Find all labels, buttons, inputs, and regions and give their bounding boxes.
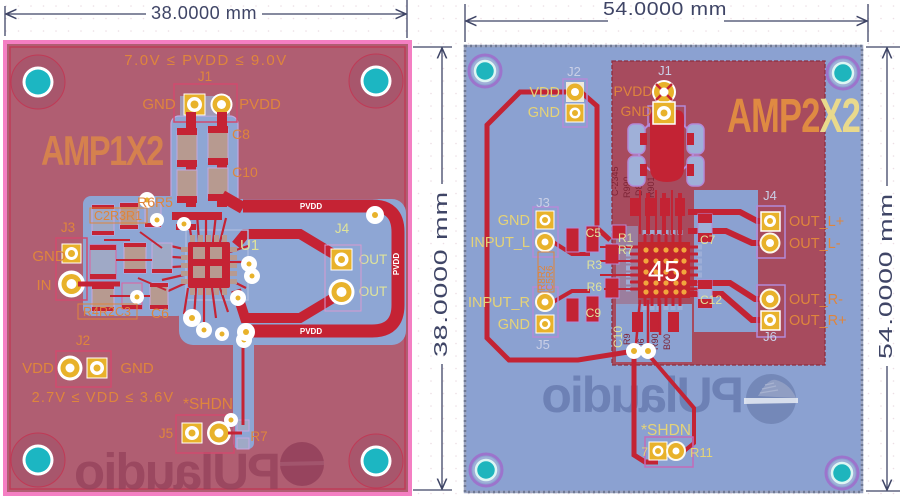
svg-text:GND: GND [528, 105, 560, 121]
svg-text:C7: C7 [700, 233, 716, 247]
svg-text:C-2345: C-2345 [610, 166, 620, 196]
svg-text:7.0V ≤ PVDD ≤ 9.0V: 7.0V ≤ PVDD ≤ 9.0V [124, 52, 288, 69]
svg-text:OUT: OUT [359, 284, 388, 299]
svg-text:J1: J1 [658, 63, 672, 78]
svg-text:OUT_L+: OUT_L+ [789, 214, 844, 230]
svg-text:INPUT_L: INPUT_L [470, 235, 530, 251]
svg-text:OUT_R-: OUT_R- [789, 292, 843, 308]
svg-text:C8: C8 [232, 126, 250, 142]
svg-text:OUT_R+: OUT_R+ [789, 313, 847, 329]
svg-text:U1: U1 [240, 237, 259, 254]
svg-text:GND: GND [120, 360, 154, 377]
svg-text:7: 7 [641, 445, 648, 459]
svg-text:R7: R7 [618, 243, 634, 257]
svg-text:PVDD: PVDD [300, 202, 322, 211]
svg-text:PVDD: PVDD [239, 96, 281, 113]
svg-text:GND: GND [142, 96, 176, 113]
svg-text:J4: J4 [763, 188, 777, 203]
svg-text:J6: J6 [763, 329, 777, 344]
svg-text:R6: R6 [587, 280, 603, 294]
svg-text:PUlaudio: PUlaudio [543, 367, 744, 423]
svg-text:C6: C6 [151, 305, 169, 321]
svg-text:J3: J3 [61, 220, 75, 235]
svg-text:J5: J5 [536, 337, 550, 352]
svg-text:VDD: VDD [529, 85, 560, 101]
svg-text:J1: J1 [198, 69, 212, 84]
svg-text:C5: C5 [586, 226, 602, 240]
svg-text:J2: J2 [76, 333, 90, 348]
svg-text:IN: IN [37, 277, 52, 294]
svg-text:GND: GND [32, 248, 66, 265]
svg-text:PUlaudio: PUlaudio [75, 443, 281, 500]
svg-text:R7: R7 [250, 429, 267, 444]
svg-text:OUT_L-: OUT_L- [789, 236, 841, 252]
svg-text:38.0000 mm: 38.0000 mm [431, 191, 451, 357]
svg-text:R3: R3 [587, 258, 603, 272]
svg-text:VDD: VDD [22, 360, 54, 377]
svg-text:R4R2C3: R4R2C3 [83, 305, 131, 319]
svg-text:C10: C10 [611, 326, 625, 348]
svg-text:R11: R11 [690, 445, 713, 460]
svg-text:J2: J2 [567, 64, 581, 79]
svg-text:INPUT_R: INPUT_R [468, 295, 530, 311]
svg-text:AMP2X2: AMP2X2 [727, 88, 860, 142]
svg-text:PVDD: PVDD [300, 327, 322, 336]
svg-text:J4: J4 [335, 221, 350, 236]
svg-text:*SHDN: *SHDN [641, 422, 691, 439]
svg-text:B00: B00 [662, 334, 672, 350]
svg-text:C12: C12 [700, 293, 722, 307]
svg-text:GND: GND [498, 317, 530, 333]
svg-text:2.7V ≤ VDD ≤ 3.6V: 2.7V ≤ VDD ≤ 3.6V [32, 390, 175, 406]
svg-text:C5R6: C5R6 [545, 265, 556, 291]
svg-text:OUT: OUT [359, 252, 388, 267]
svg-text:C10: C10 [232, 164, 258, 180]
svg-text:45: 45 [648, 256, 680, 288]
svg-text:54.0000 mm: 54.0000 mm [876, 193, 896, 359]
svg-text:*SHDN: *SHDN [183, 396, 233, 413]
svg-text:C2R3R1: C2R3R1 [94, 209, 142, 223]
svg-text:PVDD: PVDD [614, 83, 653, 99]
svg-text:38.0000 mm: 38.0000 mm [151, 3, 257, 23]
svg-text:J5: J5 [159, 426, 173, 441]
svg-text:GND: GND [620, 103, 651, 119]
svg-text:AMP1X2: AMP1X2 [41, 127, 164, 174]
svg-text:54.0000 mm: 54.0000 mm [603, 0, 727, 19]
svg-text:GND: GND [498, 213, 530, 229]
svg-text:PVDD: PVDD [392, 253, 401, 275]
svg-text:J3: J3 [536, 195, 550, 210]
svg-text:C9: C9 [586, 306, 602, 320]
